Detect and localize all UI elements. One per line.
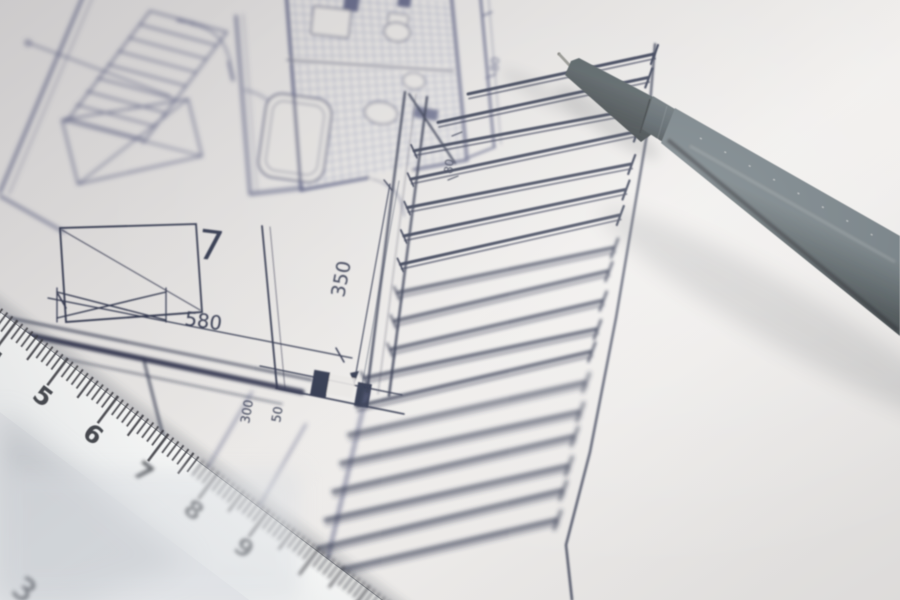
photo-floor-plan-scene: 80 7 580 350 300 50 80: [0, 0, 900, 600]
highlight-center: [0, 0, 900, 600]
scene-canvas: 80 7 580 350 300 50 80: [0, 0, 900, 600]
